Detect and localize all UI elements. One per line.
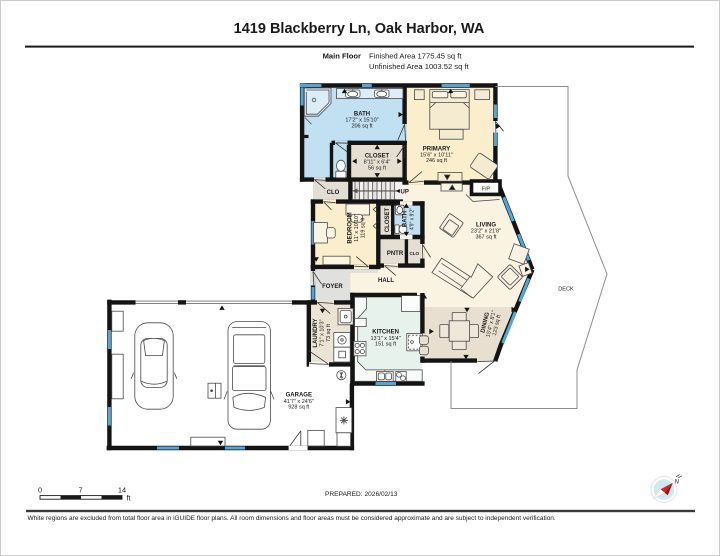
svg-text:73 sq ft: 73 sq ft [326,324,332,343]
svg-text:119 sq ft: 119 sq ft [361,217,367,238]
svg-text:0: 0 [38,486,42,495]
svg-text:Main Floor: Main Floor [323,52,361,61]
svg-text:PNTR: PNTR [387,251,404,257]
svg-text:CLOSET: CLOSET [385,208,391,233]
svg-text:FOYER: FOYER [322,284,343,290]
svg-text:GARAGE: GARAGE [286,392,312,398]
svg-text:7'1" x 10'3": 7'1" x 10'3" [320,319,326,346]
svg-text:14: 14 [118,486,126,495]
svg-text:BATH: BATH [403,211,409,227]
svg-text:Finished Area 1775.45 sq ft: Finished Area 1775.45 sq ft [369,52,462,61]
svg-text:F/P: F/P [482,186,491,192]
svg-text:206 sq ft: 206 sq ft [351,124,373,130]
svg-text:DECK: DECK [558,287,574,293]
svg-text:ft: ft [127,494,131,503]
svg-text:4'9" x 9'2": 4'9" x 9'2" [410,208,416,230]
svg-text:CLO: CLO [409,251,419,256]
svg-text:Unfinished Area 1003.52 sq ft: Unfinished Area 1003.52 sq ft [369,62,470,71]
svg-text:151 sq ft: 151 sq ft [375,342,397,348]
svg-text:PRIMARY: PRIMARY [423,146,450,152]
svg-text:White regions are excluded fro: White regions are excluded from total fl… [28,515,556,522]
svg-text:246 sq ft: 246 sq ft [426,158,448,164]
svg-text:LIVING: LIVING [476,222,496,228]
svg-text:HALL: HALL [378,278,394,284]
svg-text:LAUNDRY: LAUNDRY [313,318,319,347]
svg-text:928 sq ft: 928 sq ft [288,404,310,410]
svg-text:7: 7 [78,486,82,495]
svg-text:BEDROOM: BEDROOM [348,212,354,243]
svg-text:UP: UP [401,190,409,196]
svg-text:367 sq ft: 367 sq ft [475,234,497,240]
svg-text:56 sq ft: 56 sq ft [368,166,387,172]
svg-text:PREPARED: 2026/02/13: PREPARED: 2026/02/13 [325,491,398,498]
svg-text:11' x 10'10": 11' x 10'10" [354,214,360,242]
svg-text:KITCHEN: KITCHEN [372,329,399,335]
svg-text:N: N [675,479,680,486]
svg-text:1419 Blackberry Ln, Oak Harbor: 1419 Blackberry Ln, Oak Harbor, WA [234,21,485,37]
svg-text:CLO: CLO [327,190,340,196]
